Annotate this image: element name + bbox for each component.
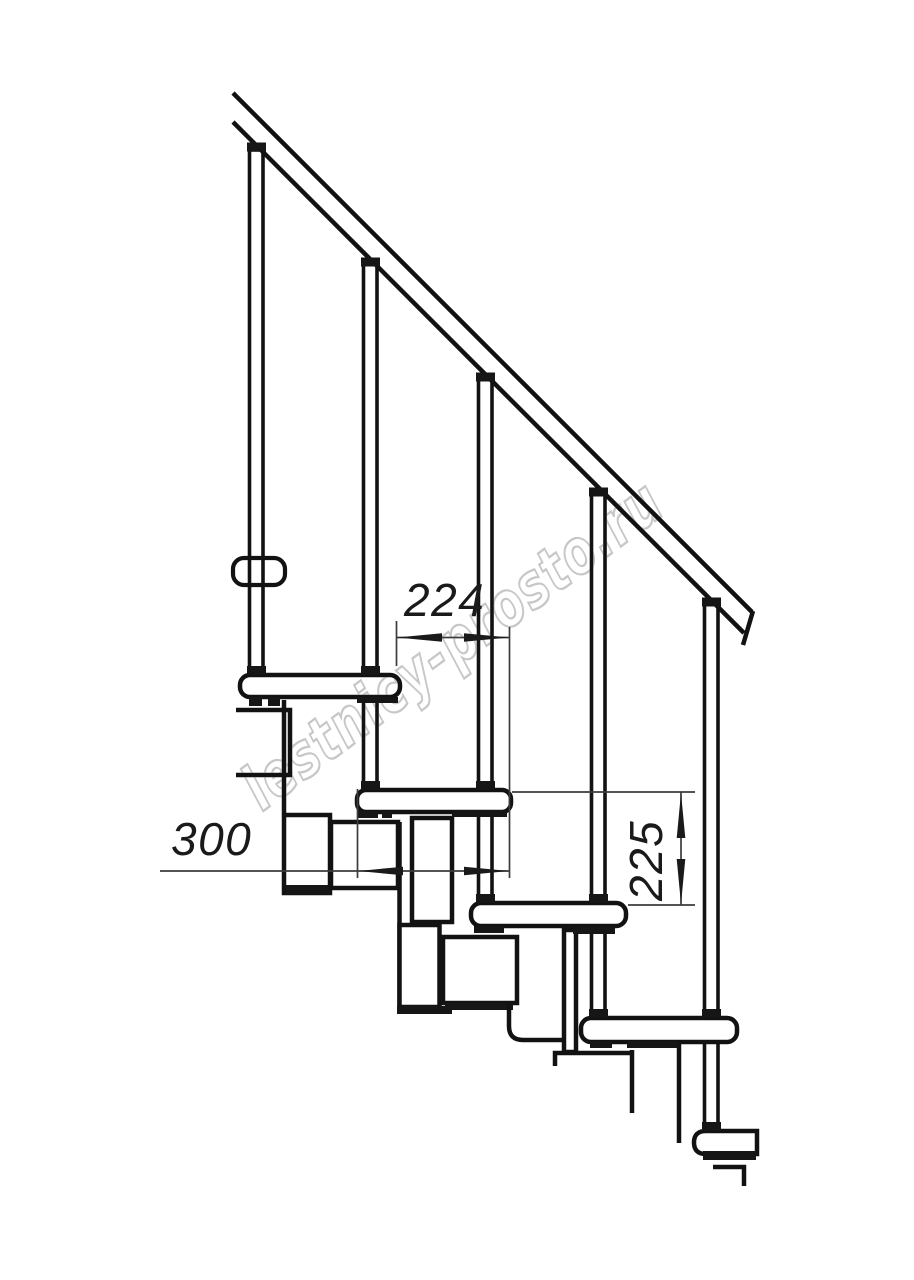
tread-foot [627,1041,677,1048]
dimension-label-225: 225 [620,820,672,902]
tread-foot [452,810,507,817]
tread-foot [590,1041,612,1048]
tread-connector [476,781,495,790]
stringer-module-6 [443,937,517,1003]
tread-2 [357,790,511,812]
tread-5 [694,1131,757,1154]
dimension-label-300: 300 [171,813,252,865]
tread-connector [476,894,495,903]
tread-connector [589,894,608,903]
tread-foot [268,697,280,706]
stringer-module-5 [400,925,440,1007]
tread-connector [702,1122,721,1131]
tread-connector [702,1009,721,1018]
stringer-step-nose [509,1003,566,1040]
tread-foot [358,811,378,818]
tread-connector [361,781,380,790]
watermark-text: lestnicy-prosto.ru [228,465,677,824]
tread-foot [249,697,262,706]
stringer-module-3 [331,822,398,888]
stringer-wall-2 [564,930,576,1052]
stringer-module-4 [412,818,452,922]
rail-connector-3 [476,373,495,382]
baluster-5 [705,604,719,1133]
tread-foot [573,927,615,934]
stringer-plate-hook [555,1053,630,1066]
tread-4 [581,1018,737,1042]
tread-connector [247,666,266,675]
staircase-technical-drawing: 224 300 225 lestnicy-prosto.ru [0,0,914,1280]
rail-connector-2 [361,258,380,267]
tread-3 [471,903,626,926]
tread-foot [474,926,504,933]
arrow-down-icon [677,859,686,904]
drawing-canvas: 224 300 225 lestnicy-prosto.ru [0,0,914,1280]
arrow-up-icon [677,793,686,838]
tread-foot [382,811,392,818]
tread-connector [589,1009,608,1018]
baluster-1 [250,150,264,677]
rail-connector-1 [247,143,266,152]
stringer-base-plate-2 [397,1006,452,1014]
stringer-base-plate-1 [286,885,330,894]
tread-foot [703,1151,756,1160]
handrail-end-cut [743,611,753,645]
rail-connector-5 [702,598,721,607]
stringer-base-plate-3 [445,1003,513,1010]
stringer-bottom-hook [713,1167,744,1186]
